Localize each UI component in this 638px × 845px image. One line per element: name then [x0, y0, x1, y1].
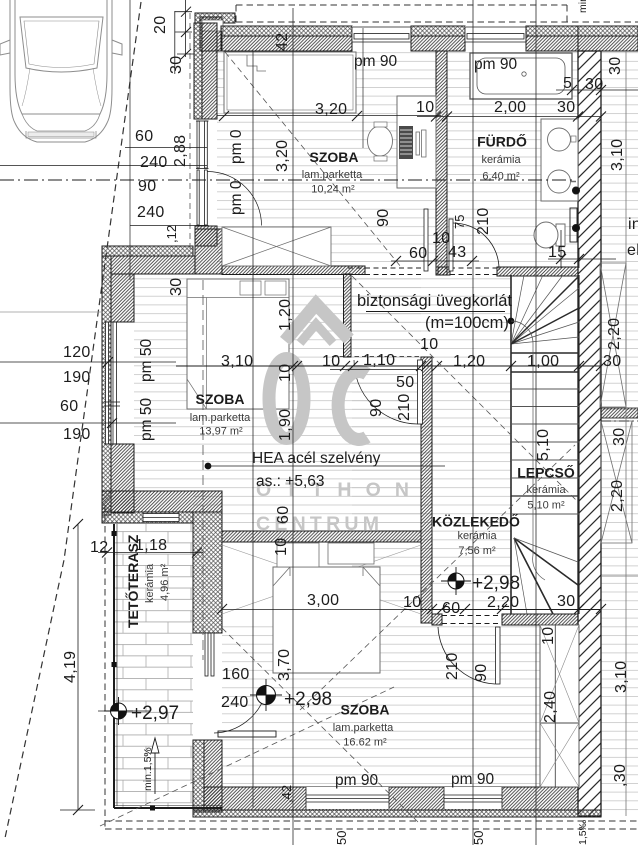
svg-text:50: 50 [471, 831, 486, 845]
svg-text:pm 50: pm 50 [138, 398, 155, 441]
svg-text:90: 90 [138, 178, 156, 195]
svg-text:30: 30 [557, 99, 575, 116]
svg-text:120: 120 [63, 344, 91, 361]
svg-text:3,10: 3,10 [613, 661, 630, 693]
svg-text:5,10: 5,10 [535, 429, 552, 461]
svg-text:240: 240 [137, 204, 165, 221]
svg-text:10: 10 [277, 364, 294, 382]
svg-text:190: 190 [63, 426, 91, 443]
svg-text:90: 90 [368, 399, 385, 417]
svg-text:210: 210 [475, 207, 492, 235]
svg-text:13,97 m²: 13,97 m² [199, 426, 243, 438]
svg-text:60: 60 [275, 506, 292, 524]
svg-text:3,10: 3,10 [609, 139, 626, 171]
svg-text:,12: ,12 [164, 225, 179, 243]
svg-text:HEA acél szelvény: HEA acél szelvény [252, 450, 381, 467]
svg-text:30: 30 [168, 278, 185, 296]
svg-text:kerámia: kerámia [481, 154, 521, 166]
svg-text:biztonsági üvegkorlát: biztonsági üvegkorlát [357, 292, 512, 310]
svg-text:lam.parketta: lam.parketta [190, 412, 251, 424]
svg-text:pm 90: pm 90 [354, 53, 397, 70]
svg-text:10: 10 [540, 627, 557, 645]
svg-text:+2,98: +2,98 [472, 573, 520, 594]
svg-text:KÖZLEKEDŐ: KÖZLEKEDŐ [432, 513, 520, 530]
svg-text:4,96 m²: 4,96 m² [159, 563, 171, 601]
svg-text:10: 10 [273, 538, 290, 556]
svg-text:10: 10 [416, 99, 434, 116]
svg-text:3,00: 3,00 [307, 592, 339, 609]
svg-text:10: 10 [420, 336, 438, 353]
svg-text:2,88: 2,88 [172, 135, 189, 167]
svg-text:1,10: 1,10 [363, 352, 395, 369]
svg-text:pm 90: pm 90 [335, 772, 378, 789]
svg-text:SZOBA: SZOBA [196, 391, 245, 407]
svg-text:43: 43 [448, 244, 466, 261]
svg-text:15: 15 [548, 244, 566, 261]
svg-text:210: 210 [444, 652, 461, 680]
svg-text:2,00: 2,00 [494, 99, 526, 116]
svg-text:lam.parketta: lam.parketta [302, 169, 363, 181]
svg-text:as.: +5,63: as.: +5,63 [256, 473, 325, 490]
svg-text:pm 0: pm 0 [228, 129, 245, 164]
svg-text:3,10: 3,10 [221, 353, 253, 370]
svg-text:1,18: 1,18 [135, 537, 167, 554]
svg-text:30: 30 [607, 57, 624, 75]
svg-text:2,40: 2,40 [542, 691, 559, 723]
svg-text:3,20: 3,20 [315, 101, 347, 118]
svg-text:10: 10 [432, 230, 450, 247]
svg-text:90: 90 [473, 664, 490, 682]
svg-text:50: 50 [396, 374, 414, 391]
svg-text:3,20: 3,20 [274, 140, 291, 172]
svg-text:2,20: 2,20 [606, 318, 623, 350]
svg-text:7,56 m²: 7,56 m² [458, 545, 496, 557]
svg-text:30: 30 [168, 56, 185, 74]
svg-text:160: 160 [222, 666, 250, 683]
svg-text:el: el [627, 242, 638, 259]
svg-text:LEPCSŐ: LEPCSŐ [517, 464, 575, 481]
svg-text:6,40 m²: 6,40 m² [482, 171, 520, 183]
svg-text:2,20: 2,20 [487, 594, 519, 611]
svg-text:240: 240 [140, 154, 168, 171]
svg-text:60: 60 [442, 600, 460, 617]
svg-text:kerámia: kerámia [457, 530, 497, 542]
svg-text:20: 20 [152, 16, 169, 34]
svg-text:30: 30 [557, 593, 575, 610]
svg-text:SZOBA: SZOBA [310, 149, 359, 165]
svg-text:kerámia: kerámia [526, 484, 566, 496]
svg-text:60: 60 [409, 245, 427, 262]
svg-text:4,19: 4,19 [62, 651, 79, 683]
svg-text:240: 240 [221, 694, 249, 711]
svg-text:75: 75 [452, 215, 467, 229]
svg-text:1,20: 1,20 [453, 353, 485, 370]
svg-text:90: 90 [375, 209, 392, 227]
svg-text:in: in [628, 216, 638, 233]
svg-text:30: 30 [611, 428, 628, 446]
svg-text:16.62 m²: 16.62 m² [343, 737, 387, 749]
svg-text:2,20: 2,20 [609, 480, 626, 512]
svg-text:10,24 m²: 10,24 m² [311, 184, 355, 196]
svg-text:pm 50: pm 50 [138, 339, 155, 382]
svg-text:60: 60 [135, 128, 153, 145]
svg-text:(m=100cm): (m=100cm) [425, 314, 509, 332]
svg-text:5: 5 [563, 75, 572, 92]
svg-text:min: min [577, 0, 589, 13]
svg-text:3,70: 3,70 [276, 649, 293, 681]
svg-text:60: 60 [60, 398, 78, 415]
svg-text:190: 190 [63, 369, 91, 386]
svg-text:min.1,5%: min.1,5% [142, 747, 154, 791]
svg-text:5,10 m²: 5,10 m² [527, 500, 565, 512]
svg-text:50: 50 [334, 831, 349, 845]
svg-text:42: 42 [274, 33, 291, 51]
svg-text:10: 10 [403, 594, 421, 611]
svg-text:1,5‰: 1,5‰ [577, 819, 589, 845]
svg-text:1,00: 1,00 [527, 353, 559, 370]
svg-text:lam.parketta: lam.parketta [333, 722, 394, 734]
svg-text:+2,98: +2,98 [284, 689, 332, 710]
svg-text:1,90: 1,90 [277, 409, 294, 441]
svg-text:pm 90: pm 90 [451, 771, 494, 788]
svg-text:pm 90: pm 90 [474, 56, 517, 73]
svg-text:kerámia: kerámia [144, 563, 156, 603]
svg-text:30: 30 [603, 353, 621, 370]
svg-text:FÜRDŐ: FÜRDŐ [477, 133, 527, 150]
svg-text:pm 0: pm 0 [228, 180, 245, 215]
svg-text:+2,97: +2,97 [131, 703, 179, 724]
svg-text:,30: ,30 [612, 764, 629, 787]
svg-text:10: 10 [322, 353, 340, 370]
svg-text:1,20: 1,20 [277, 299, 294, 331]
svg-text:210: 210 [396, 393, 413, 421]
svg-text:SZOBA: SZOBA [341, 702, 390, 718]
svg-text:30: 30 [585, 76, 603, 93]
svg-text:,42: ,42 [279, 785, 294, 803]
